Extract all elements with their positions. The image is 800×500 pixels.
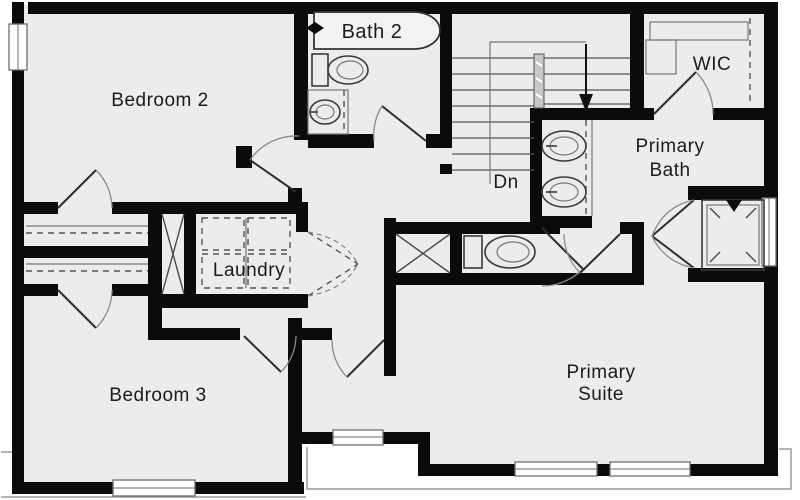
primary-suite-label-2: Suite — [578, 384, 624, 405]
window — [333, 430, 383, 445]
stair-rail — [534, 54, 544, 108]
window — [9, 24, 27, 70]
bedroom2-label: Bedroom 2 — [111, 90, 208, 111]
primary-suite-label-1: Primary — [567, 362, 636, 383]
bedroom3-label: Bedroom 3 — [109, 385, 206, 406]
stairs-dn-label: Dn — [493, 172, 518, 193]
wic-label: WIC — [693, 54, 731, 75]
window — [113, 480, 195, 496]
primary-bath-label-1: Primary — [636, 136, 705, 157]
primary-bath-label-2: Bath — [649, 160, 690, 181]
window — [515, 462, 597, 476]
floor-plan-svg: Bedroom 2 Bath 2 WIC Dn Primary Bath Lau… — [0, 0, 800, 500]
laundry-label: Laundry — [213, 260, 285, 281]
window — [610, 462, 690, 476]
floor-plan: Bedroom 2 Bath 2 WIC Dn Primary Bath Lau… — [0, 0, 800, 500]
bath2-label: Bath 2 — [342, 21, 403, 43]
